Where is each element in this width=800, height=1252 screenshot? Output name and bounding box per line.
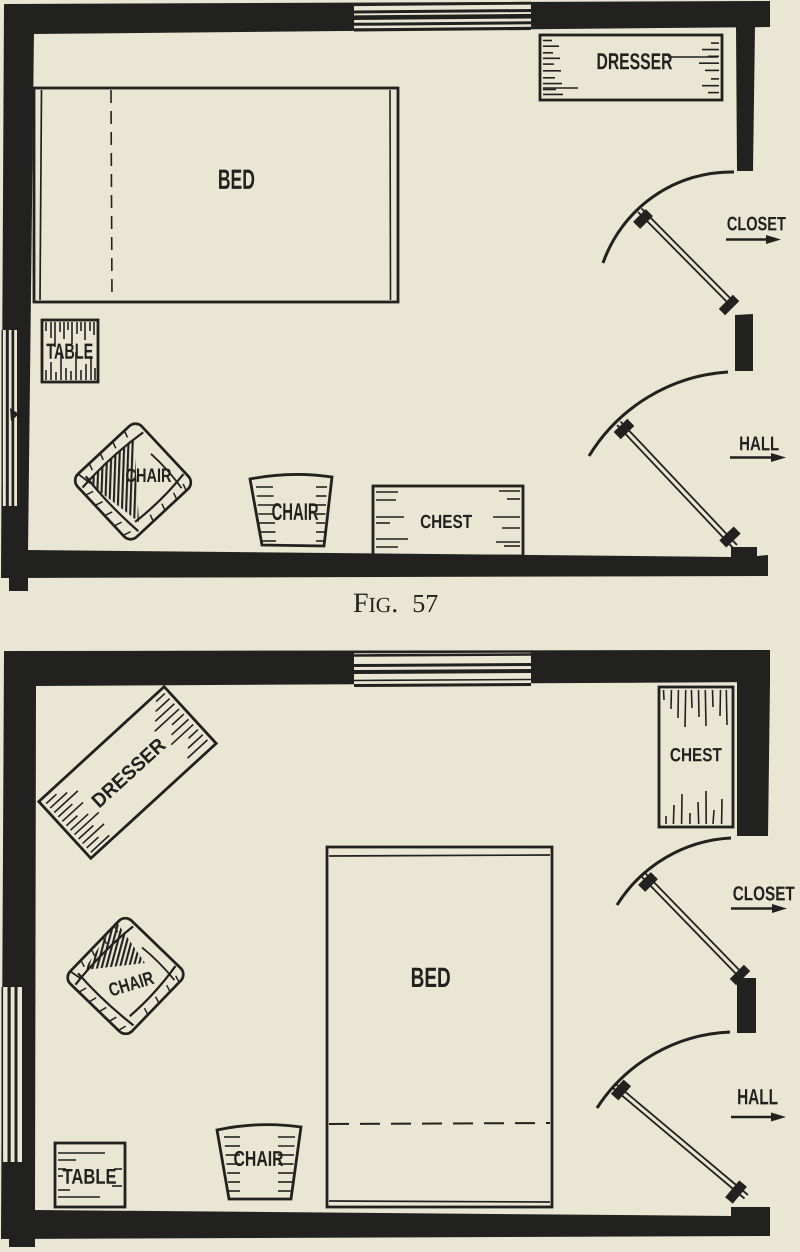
svg-text:HALL: HALL [737,1084,778,1109]
svg-text:HALL: HALL [739,433,779,455]
svg-text:BED: BED [218,164,255,195]
svg-text:CHEST: CHEST [670,745,722,766]
svg-text:CHAIR: CHAIR [234,1147,284,1171]
svg-text:CHAIR: CHAIR [126,466,172,487]
svg-text:TABLE: TABLE [63,1165,117,1189]
svg-text:CLOSET: CLOSET [727,213,786,235]
svg-text:CHAIR: CHAIR [272,499,319,526]
svg-text:FIG.57: FIG.57 [353,588,438,619]
svg-text:DRESSER: DRESSER [596,48,672,74]
svg-text:BED: BED [411,962,451,993]
svg-text:CLOSET: CLOSET [733,883,795,905]
svg-text:TABLE: TABLE [46,339,93,364]
svg-text:CHEST: CHEST [420,512,472,533]
